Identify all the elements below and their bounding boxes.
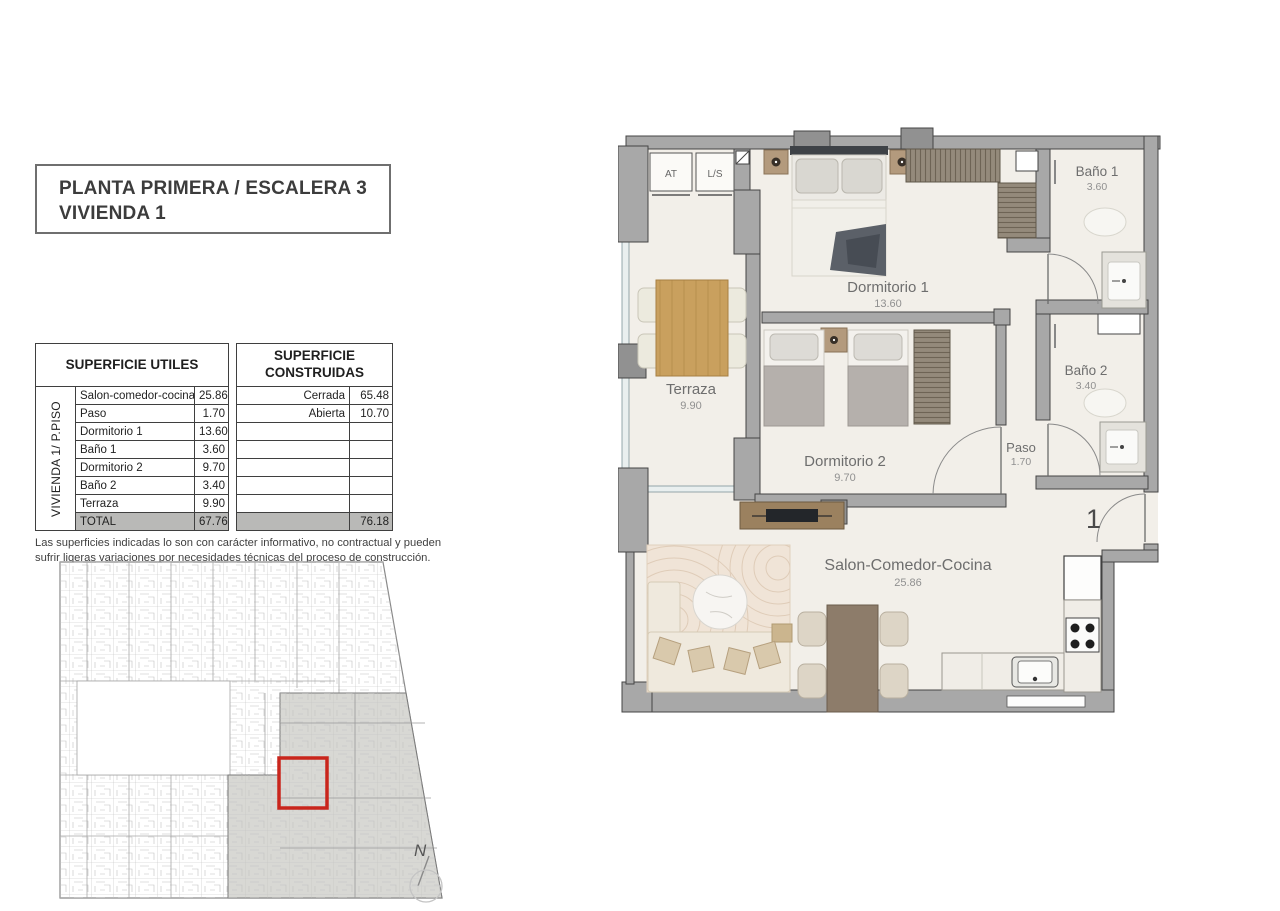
utiles-row-name: Baño 1 [76, 441, 195, 459]
utiles-row-name: Terraza [76, 495, 195, 513]
construidas-row-label: Cerrada [237, 387, 350, 405]
closet-at-label: AT [665, 169, 677, 180]
room-area-dormitorio2: 9.70 [834, 472, 855, 484]
superficie-construidas-table: SUPERFICIE CONSTRUIDAS Cerrada65.48 Abie… [236, 343, 393, 531]
coffee-table [693, 575, 747, 629]
room-label-bano2: Baño 2 [1065, 363, 1108, 378]
room-label-salon: Salon-Comedor-Cocina [824, 557, 991, 574]
room-label-bano1: Baño 1 [1076, 164, 1119, 179]
utiles-row-name: Dormitorio 1 [76, 423, 195, 441]
construidas-row-value: 10.70 [350, 405, 393, 423]
utiles-row-name: Baño 2 [76, 477, 195, 495]
construidas-row-label: Abierta [237, 405, 350, 423]
closet-ls-label: L/S [707, 169, 722, 180]
title-block: PLANTA PRIMERA / ESCALERA 3 VIVIENDA 1 [35, 164, 391, 234]
utiles-row-value: 3.40 [195, 477, 229, 495]
utiles-row-value: 1.70 [195, 405, 229, 423]
room-area-terraza: 9.90 [680, 400, 701, 412]
construidas-total-value: 76.18 [350, 513, 393, 531]
construidas-total-empty [237, 513, 350, 531]
room-label-dormitorio2: Dormitorio 2 [804, 453, 886, 470]
utiles-row-name: Salon-comedor-cocina [76, 387, 195, 405]
utiles-row-name: Paso [76, 405, 195, 423]
entry-closets: AT L/S [650, 151, 749, 195]
shaft-icon [1016, 151, 1038, 171]
unit-number-label: 1 [1086, 504, 1101, 534]
north-compass: N [398, 836, 462, 911]
plan-title-line2: VIVIENDA 1 [59, 201, 389, 226]
utiles-total-value: 67.76 [195, 513, 229, 531]
utiles-total-label: TOTAL [76, 513, 195, 531]
utiles-row-value: 25.86 [195, 387, 229, 405]
room-area-salon: 25.86 [894, 577, 922, 589]
area-tables: SUPERFICIE UTILES VIVIENDA 1/ P.PISO Sal… [35, 343, 393, 531]
wardrobe-dorm2 [914, 330, 950, 424]
plan-title-line1: PLANTA PRIMERA / ESCALERA 3 [59, 176, 389, 201]
construidas-empty [237, 495, 350, 513]
room-area-dormitorio1: 13.60 [874, 298, 902, 310]
tv-console [740, 502, 844, 529]
courtyard [77, 681, 230, 775]
bottom-wall-notch [1007, 696, 1085, 707]
shaft-icon [1098, 314, 1140, 334]
construidas-empty [237, 423, 350, 441]
floorplan-sheet: { "header": { "line1": "PLANTA PRIMERA /… [0, 0, 1280, 905]
construidas-header: SUPERFICIE CONSTRUIDAS [237, 344, 393, 387]
room-label-dormitorio1: Dormitorio 1 [847, 279, 929, 296]
room-area-bano1: 3.60 [1087, 181, 1108, 193]
construidas-empty [237, 477, 350, 495]
room-label-terraza: Terraza [666, 381, 717, 398]
utiles-row-value: 3.60 [195, 441, 229, 459]
utiles-header: SUPERFICIE UTILES [36, 344, 229, 387]
utiles-row-value: 13.60 [195, 423, 229, 441]
north-label: N [414, 841, 427, 860]
utiles-row-name: Dormitorio 2 [76, 459, 195, 477]
room-label-paso: Paso [1006, 440, 1036, 455]
side-label-cell: VIVIENDA 1/ P.PISO [36, 387, 76, 531]
room-area-bano2: 3.40 [1076, 380, 1097, 392]
construidas-empty [237, 459, 350, 477]
room-area-paso: 1.70 [1011, 456, 1032, 468]
construidas-empty [237, 441, 350, 459]
construidas-row-value: 65.48 [350, 387, 393, 405]
fridge [1064, 556, 1101, 600]
superficie-utiles-table: SUPERFICIE UTILES VIVIENDA 1/ P.PISO Sal… [35, 343, 229, 531]
utiles-row-value: 9.70 [195, 459, 229, 477]
utiles-row-value: 9.90 [195, 495, 229, 513]
side-label: VIVIENDA 1/ P.PISO [49, 401, 63, 517]
apartment-floor-plan: AT L/S Terraza 9.90 Dormitorio 1 13.60 [618, 120, 1163, 755]
stove [1066, 618, 1099, 652]
